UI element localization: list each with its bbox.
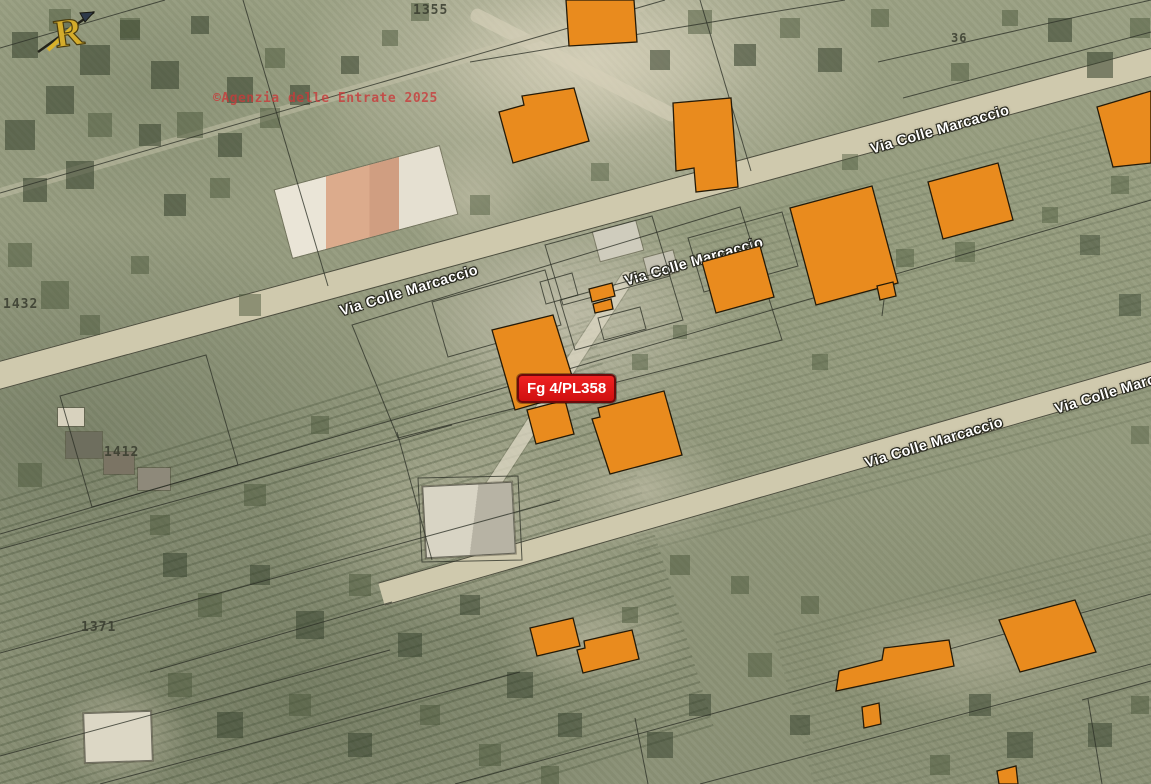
parcel-number-1412: 1412	[104, 445, 139, 460]
building	[592, 391, 682, 474]
boundary-line	[397, 432, 432, 560]
parcel-number-1371: 1371	[81, 620, 116, 635]
building	[702, 246, 774, 313]
boundary-line	[878, 0, 1151, 62]
boundary-line	[0, 200, 1151, 534]
building	[836, 640, 954, 691]
sheet-parcel-badge: Fg 4/PL358	[517, 374, 616, 403]
boundary-line	[0, 425, 452, 549]
parcel-number-36: 36	[951, 31, 967, 45]
boundary-line	[243, 0, 328, 286]
boundary-line	[0, 650, 390, 756]
boundary-line	[1088, 699, 1102, 784]
parcel-outline	[540, 273, 578, 304]
building	[527, 400, 574, 444]
north-arrow-logo: R	[34, 0, 100, 62]
parcel-outline	[560, 270, 683, 350]
boundary-line	[635, 718, 648, 784]
boundary-line	[903, 32, 1151, 98]
building	[530, 618, 580, 656]
building	[928, 163, 1013, 239]
map-viewport[interactable]: Via Colle Marcaccio	[0, 0, 1151, 784]
parcel-outline	[418, 476, 522, 562]
parcel-number-1432: 1432	[3, 297, 38, 312]
parcel-outlines	[60, 207, 798, 562]
boundary-line	[470, 0, 845, 62]
building	[577, 630, 639, 673]
building	[999, 600, 1096, 672]
building-annotation	[882, 300, 884, 316]
parcel-number-1355: 1355	[413, 3, 448, 18]
building	[862, 703, 881, 728]
copyright-notice: ©Agenzia delle Entrate 2025	[213, 91, 438, 106]
building	[499, 88, 589, 163]
boundary-line	[150, 602, 392, 672]
building	[673, 98, 738, 192]
building	[1097, 91, 1151, 167]
parcel-outline	[60, 355, 238, 507]
parcel-outline	[598, 307, 646, 340]
building	[997, 766, 1018, 784]
boundary-line	[1082, 681, 1151, 700]
boundary-line	[100, 672, 520, 784]
building	[877, 282, 896, 300]
building	[566, 0, 637, 46]
boundary-line	[700, 664, 1151, 784]
